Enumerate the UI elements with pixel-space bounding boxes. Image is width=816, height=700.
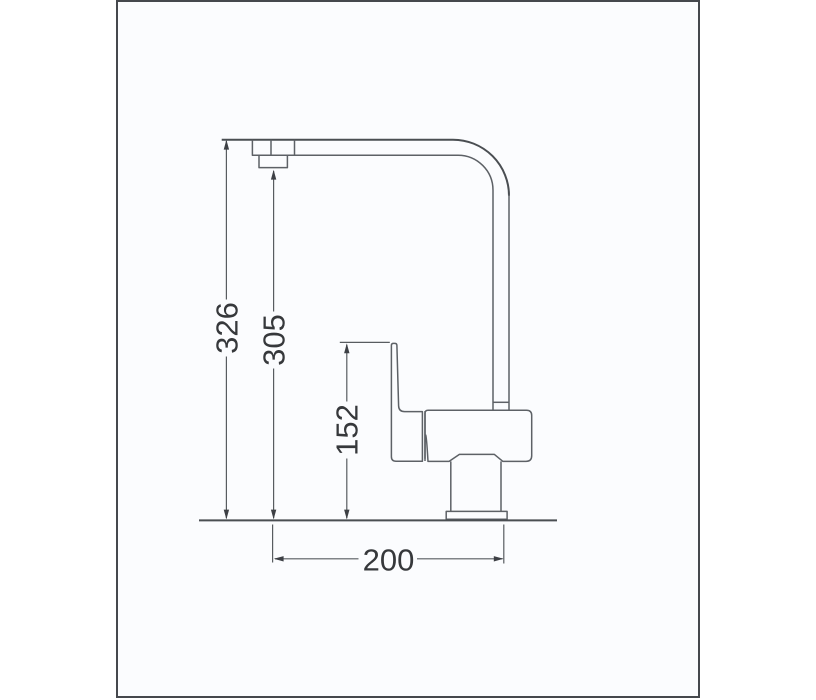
handle-outline [391, 343, 422, 461]
faucet-outline-group [199, 140, 557, 521]
dim-label-handle-height: 152 [332, 404, 363, 456]
dim-label-overall-height: 326 [211, 302, 242, 354]
arrow-305-down [271, 510, 276, 520]
arrow-326-down [224, 510, 229, 520]
arrow-305-up [271, 170, 276, 180]
spout-nozzle [252, 140, 294, 156]
body-outline [425, 410, 532, 461]
drawing-page: 326 305 152 200 [0, 0, 816, 700]
arrow-200-left [274, 556, 284, 561]
dim-label-spout-reach: 200 [363, 544, 415, 575]
arrow-200-right [494, 556, 504, 561]
base-plate [446, 511, 507, 519]
arrow-326-up [224, 140, 229, 150]
spout-aerator [259, 155, 287, 167]
arrow-152-down [344, 510, 349, 520]
arrow-152-up [344, 343, 349, 353]
faucet-technical-drawing [0, 0, 816, 700]
dim-label-spout-outlet-height: 305 [258, 314, 289, 366]
spout-bottom-line [295, 155, 494, 410]
